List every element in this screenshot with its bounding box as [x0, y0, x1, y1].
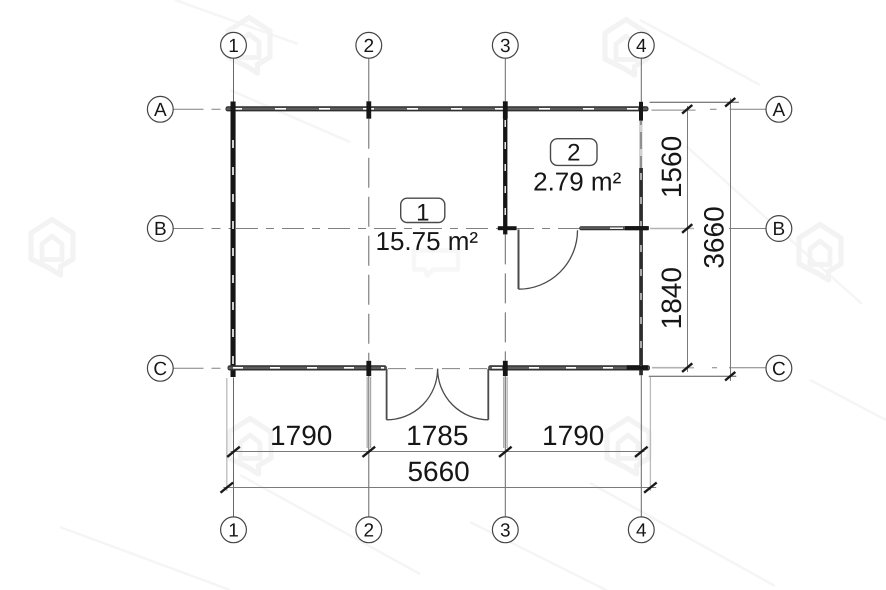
svg-text:3: 3 [500, 36, 511, 57]
svg-text:2: 2 [364, 36, 375, 57]
svg-text:1: 1 [228, 521, 239, 542]
svg-text:1: 1 [416, 200, 429, 227]
svg-text:B: B [154, 219, 167, 240]
svg-text:1790: 1790 [270, 420, 332, 451]
svg-text:1790: 1790 [542, 420, 604, 451]
svg-text:2: 2 [364, 521, 375, 542]
svg-text:3660: 3660 [698, 206, 729, 268]
svg-text:C: C [772, 359, 786, 380]
svg-text:1560: 1560 [656, 136, 687, 198]
svg-text:C: C [153, 359, 167, 380]
svg-text:5660: 5660 [407, 456, 469, 487]
svg-text:B: B [773, 219, 786, 240]
svg-text:1: 1 [228, 36, 239, 57]
svg-text:1785: 1785 [406, 420, 468, 451]
svg-text:2.79 m²: 2.79 m² [533, 167, 621, 197]
svg-text:A: A [773, 100, 786, 121]
svg-text:1840: 1840 [656, 267, 687, 329]
svg-text:A: A [154, 100, 167, 121]
svg-text:15.75 m²: 15.75 m² [375, 226, 478, 256]
svg-text:4: 4 [636, 521, 647, 542]
svg-text:2: 2 [567, 140, 580, 167]
svg-text:4: 4 [636, 36, 647, 57]
svg-text:3: 3 [500, 521, 511, 542]
